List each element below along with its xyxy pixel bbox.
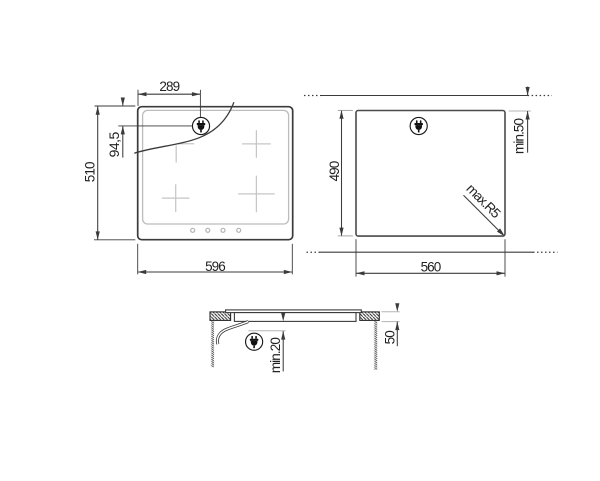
svg-text:94,5: 94,5 <box>106 131 122 157</box>
svg-text:min.50: min.50 <box>511 118 526 154</box>
svg-text:510: 510 <box>82 162 97 182</box>
svg-text:596: 596 <box>205 259 225 274</box>
svg-text:289: 289 <box>159 79 179 94</box>
svg-text:490: 490 <box>327 161 342 181</box>
svg-text:min.20: min.20 <box>268 338 283 374</box>
svg-text:560: 560 <box>421 259 441 274</box>
svg-text:50: 50 <box>382 331 397 345</box>
